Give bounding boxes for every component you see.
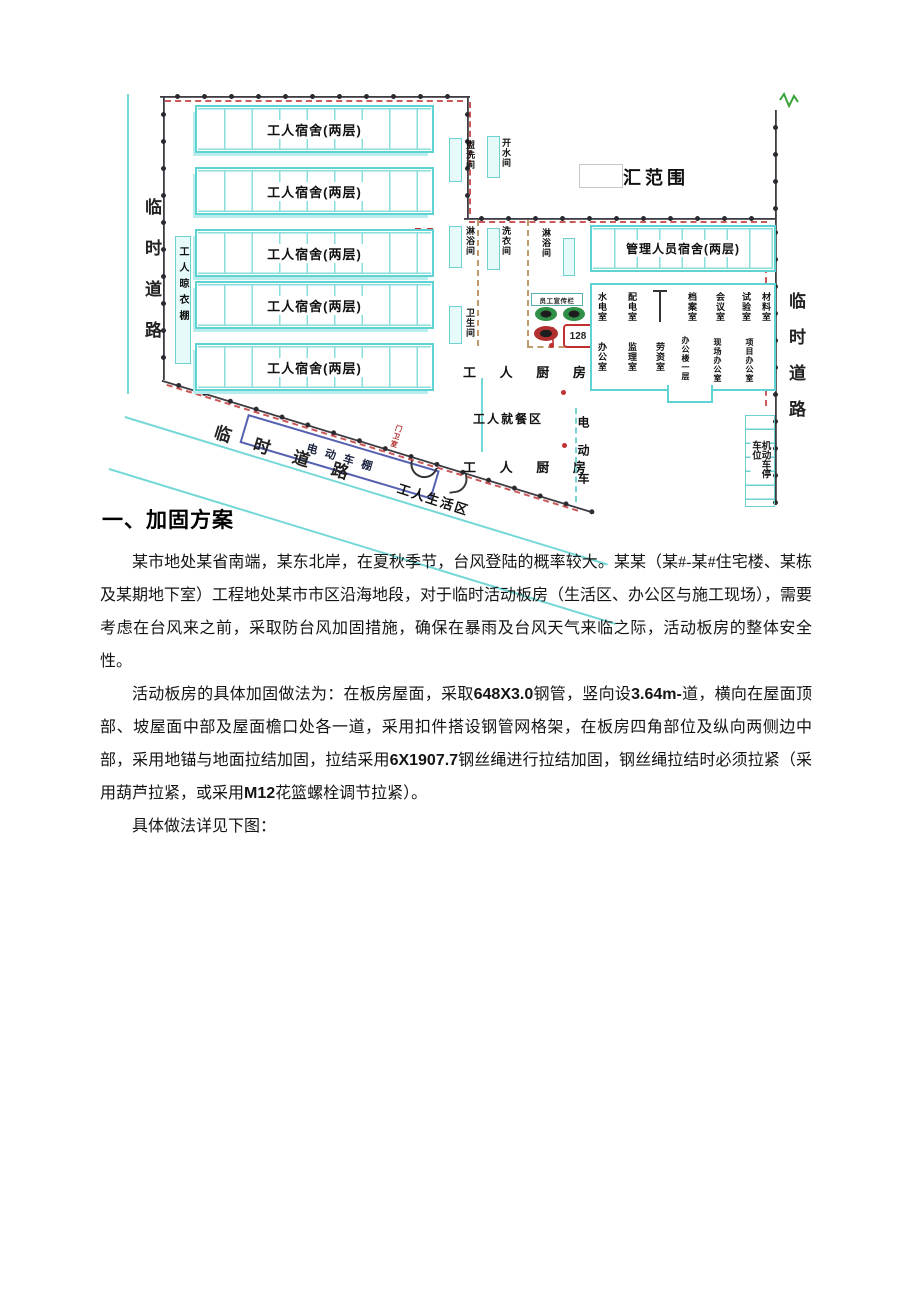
wash-strip-4 bbox=[487, 136, 500, 178]
office-room-top-4: 会议室 bbox=[715, 292, 724, 322]
red-dash-top bbox=[165, 100, 463, 102]
office-room-top-3: 档案室 bbox=[687, 292, 696, 322]
legend-patch bbox=[579, 164, 623, 188]
bulletin-board: 员工宣传栏 bbox=[531, 293, 583, 306]
management-dorm-label: 管理人员宿舍(两层) bbox=[622, 240, 744, 257]
green-sign-1 bbox=[535, 307, 557, 321]
wash-strip-2 bbox=[449, 226, 462, 268]
green-sign-2 bbox=[563, 307, 585, 321]
management-dorm: 管理人员宿舍(两层) bbox=[590, 225, 776, 272]
document-body: 一、加固方案 某市地处某省南端，某东北岸，在夏秋季节，台风登陆的概率较大。某某（… bbox=[100, 504, 812, 843]
office-room-top-2: 配电室 bbox=[627, 292, 636, 322]
worker-dorm-1: 工人宿舍(两层) bbox=[195, 105, 434, 153]
office-entry-notch bbox=[667, 385, 713, 403]
office-room-bottom-5: 现场办公室 bbox=[713, 338, 721, 383]
paragraph-1: 某市地处某省南端，某东北岸，在夏秋季节，台风登陆的概率较大。某某（某#-某#住宅… bbox=[100, 546, 812, 678]
office-room-bottom-2: 监理室 bbox=[627, 342, 636, 372]
washroom-label-2: 淋浴间 bbox=[465, 226, 474, 256]
red-dot-3 bbox=[562, 443, 567, 448]
parking-label: 机动车停车位 bbox=[751, 439, 770, 484]
road-label-right: 临时道路 bbox=[783, 292, 808, 436]
red-number-sign: 128 bbox=[563, 324, 593, 348]
parking-area: 机动车停车位 bbox=[745, 415, 775, 507]
worker-dorm-4: 工人宿舍(两层) bbox=[195, 281, 434, 329]
site-plan: 临时道路 工人晾衣棚 工人宿舍(两层) 工人宿舍(两层) 工人宿舍(两层) 工人… bbox=[115, 80, 815, 512]
paragraph-2: 活动板房的具体加固做法为：在板房屋面，采取648X3.0钢管，竖向设3.64m-… bbox=[100, 678, 812, 810]
office-room-top-6: 材料室 bbox=[761, 292, 770, 322]
worker-dorm-label: 工人宿舍(两层) bbox=[263, 358, 366, 377]
washroom-label-6: 淋浴间 bbox=[541, 228, 550, 258]
p2-seg-7: M12 bbox=[244, 785, 275, 802]
office-room-top-5: 试验室 bbox=[741, 292, 750, 322]
p2-seg-0: 活动板房的具体加固做法为：在板房屋面，采取 bbox=[132, 686, 474, 703]
washroom-label-4: 开水间 bbox=[501, 138, 510, 168]
ev-area-label: 电动车 bbox=[577, 416, 589, 500]
section-heading: 一、加固方案 bbox=[102, 504, 812, 534]
worker-dorm-label: 工人宿舍(两层) bbox=[263, 244, 366, 263]
boundary-note: 汇范围 bbox=[623, 164, 689, 190]
washroom-label-3: 卫生间 bbox=[465, 308, 474, 338]
paragraph-3: 具体做法详见下图： bbox=[100, 810, 812, 843]
wash-strip-1 bbox=[449, 138, 462, 182]
worker-dorm-5: 工人宿舍(两层) bbox=[195, 343, 434, 391]
inner-dash-2 bbox=[527, 220, 529, 346]
office-room-bottom-1: 办公室 bbox=[597, 342, 606, 372]
flagpole-icon bbox=[659, 292, 661, 322]
washroom-label-1: 盥洗间 bbox=[465, 140, 474, 170]
red-sign bbox=[534, 326, 558, 341]
office-room-bottom-3: 劳资室 bbox=[655, 342, 664, 372]
red-dash-mid bbox=[469, 221, 767, 223]
inner-dash-1 bbox=[477, 220, 479, 346]
office-room-top-1: 水电室 bbox=[597, 292, 606, 322]
wash-strip-6 bbox=[563, 238, 575, 276]
p2-seg-8: 花篮螺栓调节拉紧）。 bbox=[275, 785, 427, 802]
fence-mast bbox=[772, 110, 779, 217]
clothes-shed-label: 工人晾衣棚 bbox=[177, 246, 187, 326]
dining-label: 工人就餐区 bbox=[473, 410, 543, 427]
office-room-bottom-6: 项目办公室 bbox=[745, 338, 753, 383]
p2-seg-5: 6X1907.7 bbox=[390, 752, 459, 769]
worker-dorm-label: 工人宿舍(两层) bbox=[263, 120, 366, 139]
curved-arrow-icon bbox=[447, 473, 469, 494]
p2-seg-2: 钢管，竖向设 bbox=[533, 686, 631, 703]
worker-dorm-label: 工人宿舍(两层) bbox=[263, 296, 366, 315]
line-break-icon bbox=[779, 92, 799, 108]
worker-dorm-3: 工人宿舍(两层) bbox=[195, 229, 434, 277]
road-label-left: 临时道路 bbox=[139, 198, 164, 362]
left-road-outer-edge bbox=[127, 94, 129, 394]
gatehouse-label: 门卫室 bbox=[389, 424, 403, 449]
worker-dorm-label: 工人宿舍(两层) bbox=[263, 182, 366, 201]
red-dot-1 bbox=[549, 343, 554, 348]
washroom-label-5: 洗衣间 bbox=[501, 226, 510, 256]
red-dot-2 bbox=[561, 390, 566, 395]
wash-strip-3 bbox=[449, 306, 462, 344]
office-room-bottom-4: 办公楼一层 bbox=[681, 336, 689, 381]
p2-seg-3: 3.64m- bbox=[631, 686, 682, 703]
worker-dorm-2: 工人宿舍(两层) bbox=[195, 167, 434, 215]
wash-strip-5 bbox=[487, 228, 500, 270]
fence-top bbox=[160, 93, 470, 100]
p2-seg-1: 648X3.0 bbox=[474, 686, 534, 703]
